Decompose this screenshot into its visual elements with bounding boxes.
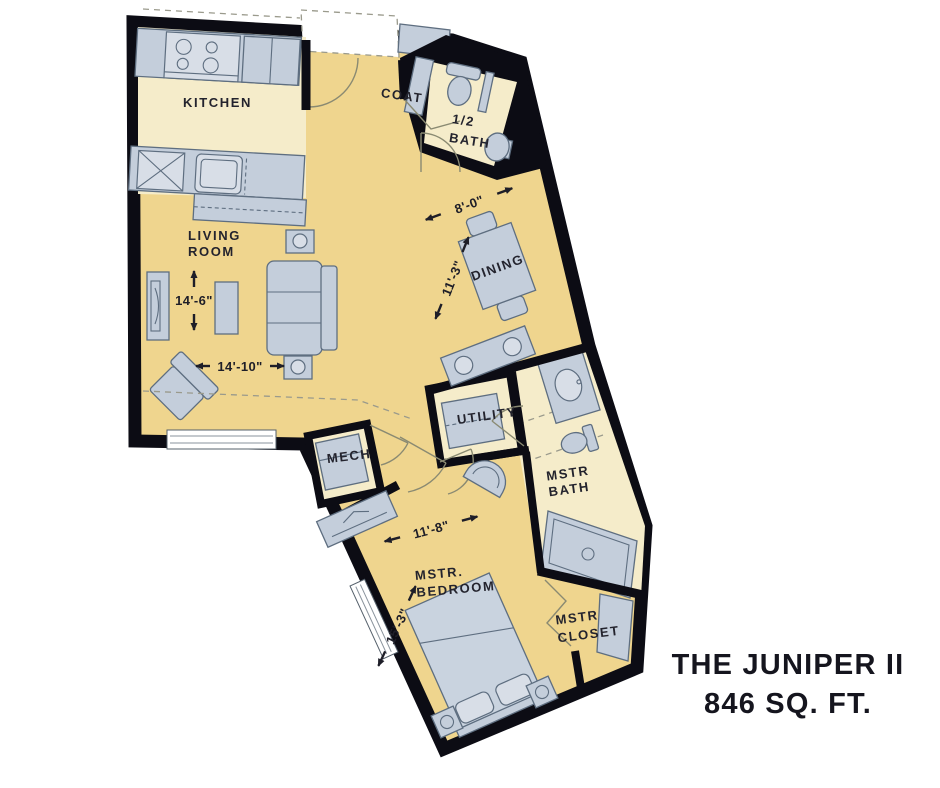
kitchen-label: KITCHEN bbox=[183, 95, 252, 110]
plan-title-area: 846 SQ. FT. bbox=[704, 688, 872, 720]
dimension-text: 14'-10" bbox=[217, 359, 262, 374]
roof-dashed-line bbox=[143, 9, 300, 18]
dimension-text: 14'-6" bbox=[175, 293, 213, 308]
tv-console bbox=[147, 272, 169, 340]
end-table-lamp-bottom bbox=[284, 356, 312, 379]
entry-porch bbox=[301, 10, 399, 57]
living-room-window bbox=[167, 430, 276, 449]
living-room-label-1: LIVING bbox=[188, 228, 241, 243]
sofa bbox=[267, 261, 337, 355]
plan-title-name: THE JUNIPER II bbox=[672, 649, 905, 681]
floor-plan-page: DINING KITCHEN LIVING ROOM COAT 1/2 BATH… bbox=[0, 0, 940, 788]
living-room-label-2: ROOM bbox=[188, 244, 235, 259]
coffee-table bbox=[215, 282, 238, 334]
master-bath-label: MSTR BATH bbox=[545, 463, 592, 500]
end-table-lamp-top bbox=[286, 230, 314, 253]
floor-plan: DINING KITCHEN LIVING ROOM COAT 1/2 BATH… bbox=[0, 0, 940, 788]
